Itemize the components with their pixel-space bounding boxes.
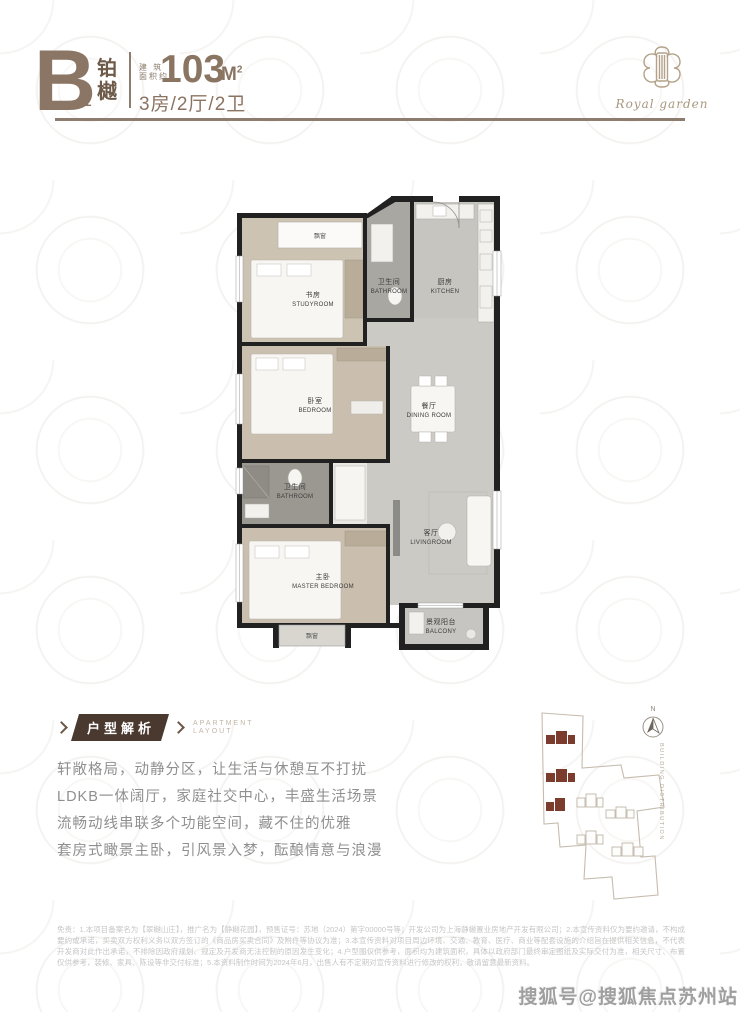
- chevron-right-icon: [55, 721, 68, 734]
- north-compass-icon: N: [643, 706, 663, 737]
- analysis-line: LDKB一体阔厅，家庭社交中心，丰盛生活场景: [57, 784, 417, 811]
- balcony-label-en: BALCONY: [426, 629, 457, 635]
- area-value: 103: [160, 50, 225, 89]
- analysis-line: 流畅动线串联多个功能空间，藏不住的优雅: [57, 811, 417, 838]
- bath1-label-cn: 卫生间: [378, 277, 401, 286]
- dining-label-cn: 餐厅: [422, 401, 437, 410]
- brand-script-text: Royal garden: [612, 97, 712, 111]
- bath2-label-en: BATHROOM: [277, 494, 314, 500]
- layout-spec: 3房/2厅/2卫: [139, 89, 246, 116]
- analysis-line: 套房式瞰景主卧，引风景入梦，酝酿情意与浪漫: [57, 838, 417, 865]
- kitchen-label-cn: 厨房: [438, 277, 453, 286]
- quatrefoil-emblem-icon: [639, 44, 685, 90]
- site-map: N BUILDING DISTRIBUTION: [520, 695, 720, 910]
- floorplan-drawing: 飘窗 书房 STUDYROOM 卫生间 BATHROOM 厨房 KITCHEN …: [233, 196, 503, 661]
- disclaimer-text: 免责：1.本项目备案名为【翠樾山庄】，推广名为【静樾花园】，预售证号：苏地（20…: [57, 924, 685, 968]
- study-label-en: STUDYROOM: [292, 302, 334, 308]
- header-vertical-divider: [129, 52, 131, 108]
- layout-analysis-paragraphs: 轩敞格局，动静分区，让生活与休憩互不打扰 LDKB一体阔厅，家庭社交中心，丰盛生…: [57, 757, 417, 865]
- bay-window-top-label: 飘窗: [314, 232, 326, 240]
- unit-name: 铂 樾: [95, 58, 119, 104]
- bay-window-bottom-label: 飘窗: [306, 632, 318, 640]
- poster-page: B 1 铂 樾 建 筑 面积约 103 M2 3房/2厅/2卫 Royal ga…: [0, 0, 740, 1012]
- north-label: N: [650, 706, 655, 713]
- bedroom-label-cn: 卧室: [308, 396, 323, 405]
- bedroom-label-en: BEDROOM: [298, 408, 331, 414]
- section-ribbon-title: 户型解析: [71, 714, 169, 741]
- highlighted-buildings: [546, 731, 575, 811]
- living-label-en: LIVINGROOM: [410, 540, 451, 546]
- dining-label-en: DINING ROOM: [407, 413, 452, 419]
- master-label-cn: 主卧: [316, 572, 331, 581]
- header-rule: [55, 118, 685, 121]
- sohu-watermark: 搜狐号@搜狐焦点苏州站: [518, 982, 738, 1009]
- bath2-label-cn: 卫生间: [284, 482, 307, 491]
- bath1-label-en: BATHROOM: [371, 289, 408, 295]
- brand-logo: Royal garden: [612, 44, 712, 111]
- study-label-cn: 书房: [306, 290, 321, 299]
- unit-name-char-top: 铂: [95, 58, 119, 81]
- apartment-layout-section-header: 户型解析 APARTMENT LAYOUT: [57, 714, 254, 741]
- outline-buildings: [577, 794, 643, 856]
- building-distribution-label: BUILDING DISTRIBUTION: [658, 743, 664, 841]
- master-label-en: MASTER BEDROOM: [292, 584, 354, 590]
- analysis-line: 轩敞格局，动静分区，让生活与休憩互不打扰: [57, 757, 417, 784]
- kitchen-label-en: KITCHEN: [431, 289, 459, 295]
- area-unit: M2: [221, 64, 242, 86]
- section-subtitle: APARTMENT LAYOUT: [193, 720, 254, 736]
- unit-number: 1: [82, 90, 92, 111]
- balcony-label-cn: 景观阳台: [426, 617, 456, 626]
- chevron-left-icon: [172, 721, 185, 734]
- unit-letter: B: [34, 38, 96, 124]
- living-label-cn: 客厅: [424, 528, 439, 537]
- unit-name-char-bottom: 樾: [95, 81, 119, 104]
